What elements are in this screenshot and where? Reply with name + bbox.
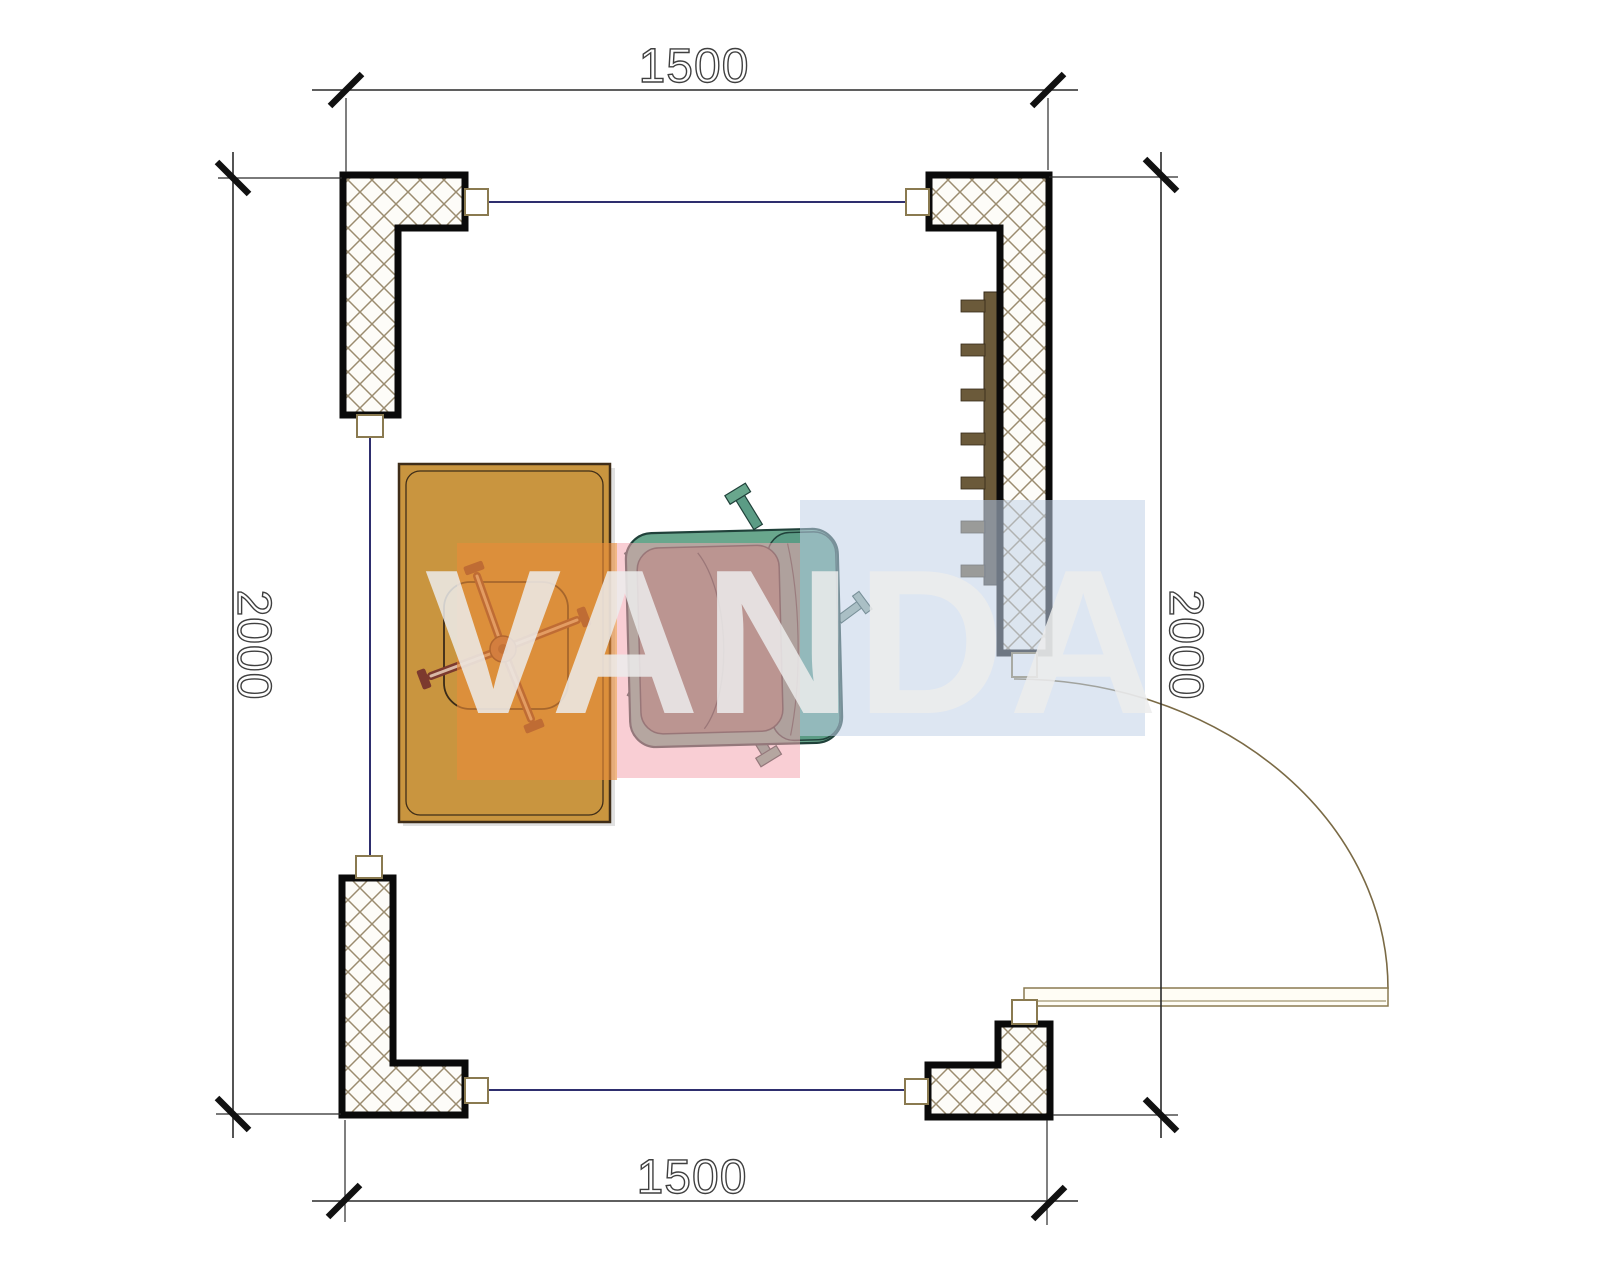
window-jamb — [356, 856, 382, 878]
floor-plan-canvas: VANDA — [0, 0, 1600, 1280]
window-jamb — [465, 189, 488, 215]
window-jamb — [465, 1078, 488, 1103]
window-jamb — [905, 1079, 928, 1104]
armchair-leg-top — [725, 483, 768, 533]
window-jamb — [357, 415, 383, 437]
radiator-fin — [961, 433, 985, 445]
dimension-tick — [1033, 1187, 1065, 1219]
wall-bottom-left — [342, 878, 465, 1115]
radiator-fin — [961, 344, 985, 356]
dimension-label-right: 2000 — [1159, 590, 1212, 701]
dimension-label-top: 1500 — [639, 40, 750, 93]
door-leaf — [1024, 988, 1388, 1006]
radiator-fin — [961, 477, 985, 489]
dimension-label-bottom: 1500 — [637, 1151, 748, 1204]
door-jamb-latch — [1012, 1000, 1037, 1024]
watermark-text: VANDA — [424, 527, 1161, 757]
window-jamb — [906, 189, 929, 215]
dimension-label-left: 2000 — [227, 590, 280, 701]
radiator-fin — [961, 389, 985, 401]
wall-bottom-right — [928, 1024, 1050, 1117]
radiator-fin — [961, 300, 985, 312]
wall-top-left — [343, 175, 465, 415]
